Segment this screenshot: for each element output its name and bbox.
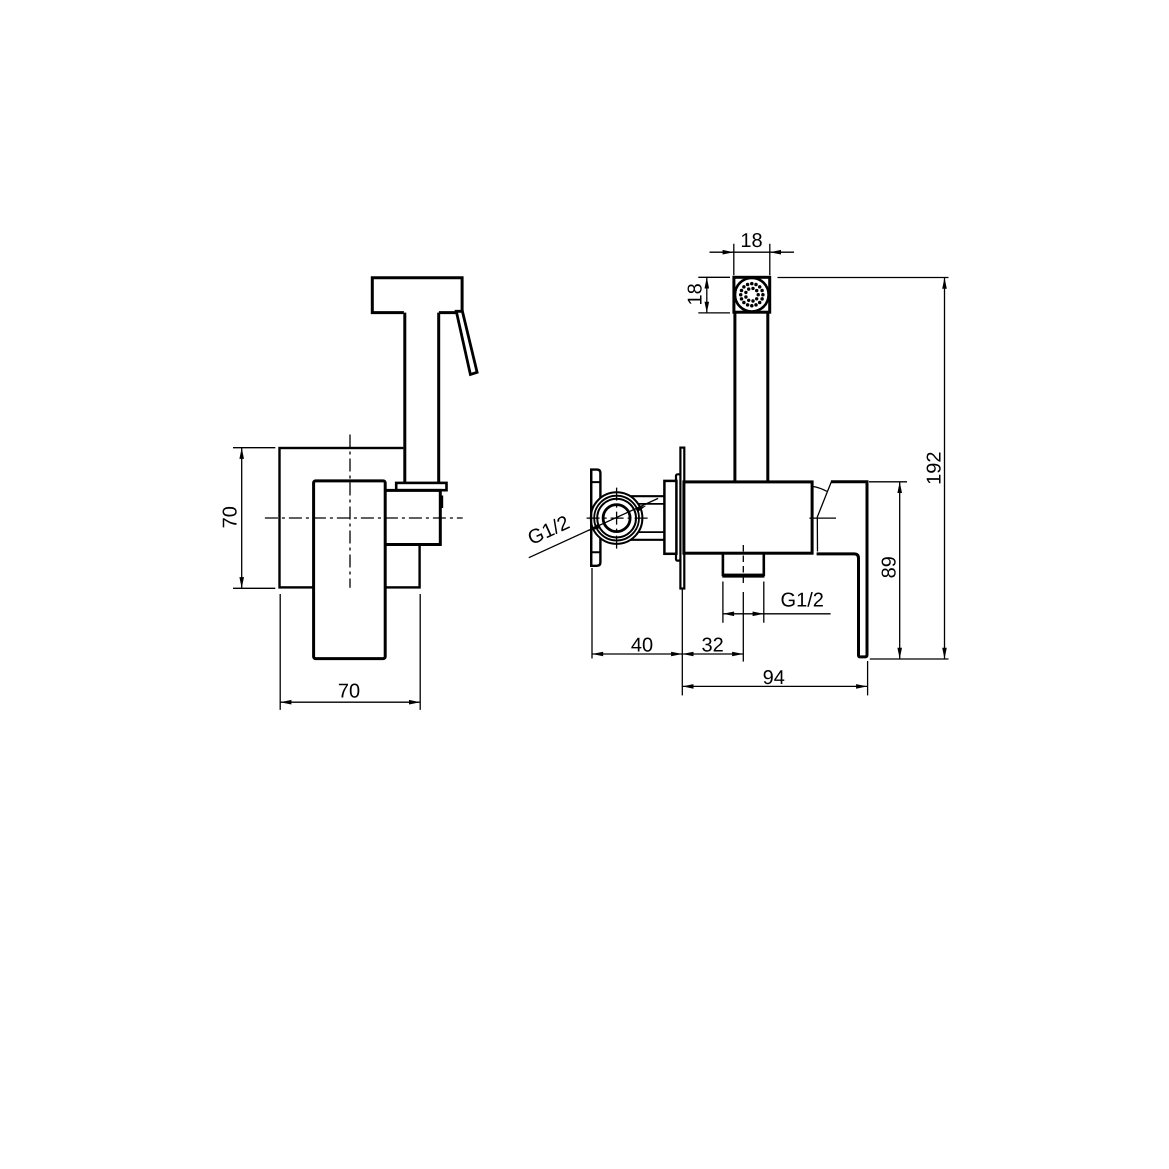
svg-text:G1/2: G1/2 xyxy=(781,589,824,611)
svg-text:18: 18 xyxy=(684,283,706,305)
svg-text:40: 40 xyxy=(631,635,653,657)
svg-text:192: 192 xyxy=(923,452,945,485)
svg-text:70: 70 xyxy=(219,506,241,528)
svg-text:94: 94 xyxy=(763,667,785,689)
svg-text:18: 18 xyxy=(740,230,762,252)
svg-text:70: 70 xyxy=(338,681,360,703)
svg-text:89: 89 xyxy=(878,556,900,578)
svg-text:32: 32 xyxy=(701,634,723,656)
